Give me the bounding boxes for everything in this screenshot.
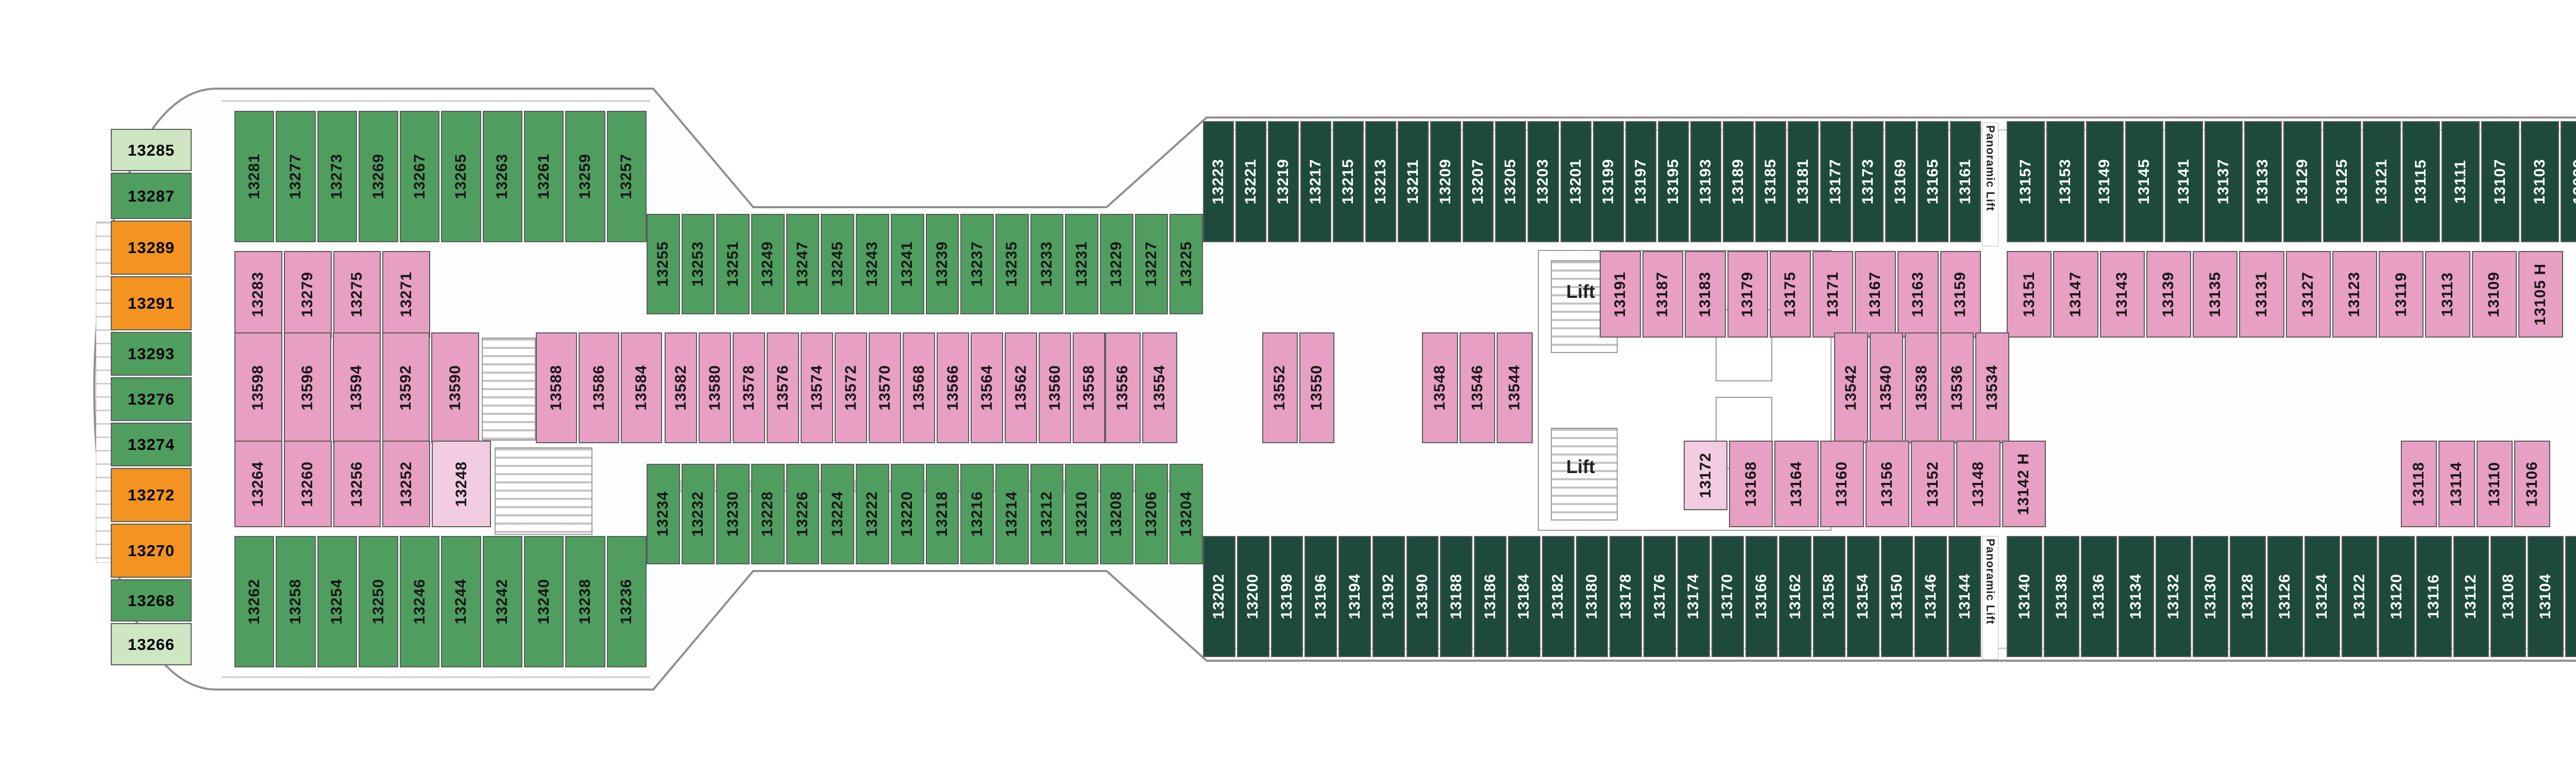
- cabin-row: 1328113277132731326913267132651326313261…: [234, 111, 647, 242]
- cabin-13224: 13224: [821, 464, 854, 564]
- cabin-13130: 13130: [2193, 536, 2228, 657]
- cabin-13546: 13546: [1460, 332, 1496, 443]
- cabin-13191: 13191: [1600, 251, 1641, 338]
- cabin-13229: 13229: [1100, 214, 1133, 314]
- cabin-13272: 13272: [111, 468, 192, 522]
- cabin-13142H: 13142 H: [2002, 441, 2046, 527]
- cabin-13552: 13552: [1262, 332, 1298, 443]
- cabin-13281: 13281: [234, 111, 274, 242]
- cabin-13225: 13225: [1170, 214, 1203, 314]
- cabin-13250: 13250: [359, 536, 398, 667]
- cabin-13179: 13179: [1727, 251, 1769, 338]
- cabin-13287: 13287: [111, 173, 192, 219]
- cabin-13180: 13180: [1576, 536, 1608, 657]
- cabin-row: 1315113147131431313913135131311312713123…: [2007, 251, 2563, 338]
- cabin-13132: 13132: [2156, 536, 2191, 657]
- cabin-row: 1355613554: [1105, 332, 1177, 443]
- cabin-13570: 13570: [869, 332, 901, 443]
- cabin-13252: 13252: [382, 441, 430, 527]
- cabin-row: 1358213580135781357613574135721357013568…: [665, 332, 1105, 443]
- cabin-13124: 13124: [2304, 536, 2340, 657]
- cabin-13164: 13164: [1774, 441, 1818, 527]
- cabin-13239: 13239: [926, 214, 959, 314]
- cabin-13199: 13199: [1593, 121, 1624, 242]
- cabin-13550: 13550: [1299, 332, 1335, 443]
- cabin-row: 1325513253132511324913247132451324313241…: [647, 214, 1203, 314]
- cabin-13277: 13277: [276, 111, 315, 242]
- cabin-row: 1354213540135381353613534: [1834, 332, 2009, 443]
- cabin-13172: 13172: [1684, 441, 1727, 510]
- cabin-13234: 13234: [647, 464, 680, 564]
- cabin-row: 13248: [432, 441, 491, 527]
- cabin-13119: 13119: [2379, 251, 2424, 338]
- cabin-13158: 13158: [1813, 536, 1845, 657]
- cabin-row: 1322313221132191321713215132131321113209…: [1203, 121, 1981, 242]
- cabin-13586: 13586: [579, 332, 620, 443]
- cabin-row: 1359813596135941359213590: [234, 332, 479, 443]
- cabin-13195: 13195: [1658, 121, 1689, 242]
- cabin-13201: 13201: [1561, 121, 1591, 242]
- cabin-13246: 13246: [400, 536, 439, 667]
- cabin-13226: 13226: [786, 464, 820, 564]
- cabin-13285: 13285: [111, 129, 192, 171]
- cabin-13107: 13107: [2481, 121, 2519, 242]
- cabin-row: 13264132601325613252: [234, 441, 430, 527]
- cabin-13104: 13104: [2528, 536, 2563, 657]
- cabin-13214: 13214: [995, 464, 1029, 564]
- cabin-13271: 13271: [382, 251, 430, 338]
- cabin-13562: 13562: [1005, 332, 1037, 443]
- cabin-13167: 13167: [1855, 251, 1896, 338]
- cabin-13220: 13220: [891, 464, 924, 564]
- cabin-13184: 13184: [1508, 536, 1540, 657]
- cabin-13175: 13175: [1770, 251, 1811, 338]
- cabin-13189: 13189: [1723, 121, 1754, 242]
- cabin-13248: 13248: [432, 441, 491, 527]
- cabin-13540: 13540: [1870, 332, 1904, 443]
- lift-label-port: Lift: [1566, 281, 1595, 303]
- cabin-13148: 13148: [1956, 441, 2000, 527]
- cabin-13144: 13144: [1948, 536, 1981, 657]
- cabin-13192: 13192: [1372, 536, 1405, 657]
- cabin-13137: 13137: [2205, 121, 2243, 242]
- cabin-13152: 13152: [1911, 441, 1955, 527]
- cabin-13590: 13590: [431, 332, 479, 443]
- cabin-13215: 13215: [1333, 121, 1364, 242]
- cabin-13564: 13564: [971, 332, 1003, 443]
- cabin-13162: 13162: [1779, 536, 1811, 657]
- cabin-13279: 13279: [284, 251, 332, 338]
- cabin-13202: 13202: [1203, 536, 1235, 657]
- cabin-13187: 13187: [1642, 251, 1684, 338]
- cabin-13125: 13125: [2323, 121, 2361, 242]
- cabin-13196: 13196: [1304, 536, 1337, 657]
- cabin-13194: 13194: [1338, 536, 1371, 657]
- panoramic-lift-label-starboard: Panoramic Lift: [1982, 536, 1998, 660]
- cabin-13265: 13265: [441, 111, 481, 242]
- cabin-13156: 13156: [1866, 441, 1909, 527]
- cabin-13140: 13140: [2007, 536, 2042, 657]
- cabin-13261: 13261: [524, 111, 564, 242]
- cabin-13245: 13245: [821, 214, 854, 314]
- cabin-13558: 13558: [1073, 332, 1105, 443]
- cabin-13259: 13259: [565, 111, 605, 242]
- cabin-13111: 13111: [2442, 121, 2480, 242]
- cabin-13276: 13276: [111, 377, 192, 421]
- cabin-13208: 13208: [1100, 464, 1133, 564]
- cabin-13236: 13236: [607, 536, 647, 667]
- cabin-13275: 13275: [333, 251, 381, 338]
- cabin-13241: 13241: [891, 214, 924, 314]
- cabin-13253: 13253: [682, 214, 715, 314]
- cabin-13204: 13204: [1170, 464, 1203, 564]
- cabin-13143: 13143: [2100, 251, 2145, 338]
- deck-plan: Lift Lift Lift Panoramic Lift Panoramic …: [0, 0, 2576, 772]
- cabin-13566: 13566: [937, 332, 969, 443]
- cabin-13123: 13123: [2332, 251, 2377, 338]
- cabin-13131: 13131: [2239, 251, 2284, 338]
- cabin-13538: 13538: [1905, 332, 1939, 443]
- cabin-13110: 13110: [2477, 441, 2513, 527]
- cabin-13190: 13190: [1406, 536, 1439, 657]
- cabin-13588: 13588: [536, 332, 577, 443]
- stairs: [495, 447, 592, 535]
- cabin-13554: 13554: [1142, 332, 1178, 443]
- cabin-13149: 13149: [2086, 121, 2124, 242]
- cabin-13267: 13267: [400, 111, 439, 242]
- cabin-13237: 13237: [960, 214, 994, 314]
- cabin-13159: 13159: [1940, 251, 1981, 338]
- cabin-13134: 13134: [2119, 536, 2154, 657]
- cabin-13228: 13228: [751, 464, 785, 564]
- cabin-13270: 13270: [111, 524, 192, 578]
- cabin-13182: 13182: [1542, 536, 1574, 657]
- cabin-13568: 13568: [903, 332, 935, 443]
- cabin-13560: 13560: [1039, 332, 1071, 443]
- cabin-13227: 13227: [1135, 214, 1168, 314]
- cabin-13118: 13118: [2401, 441, 2437, 527]
- cabin-13114: 13114: [2438, 441, 2475, 527]
- cabin-13135: 13135: [2193, 251, 2238, 338]
- cabin-13536: 13536: [1940, 332, 1974, 443]
- cabin-13133: 13133: [2244, 121, 2282, 242]
- cabin-row: 13172: [1684, 441, 1727, 510]
- cabin-13263: 13263: [483, 111, 522, 242]
- cabin-13243: 13243: [856, 214, 889, 314]
- cabin-13238: 13238: [565, 536, 605, 667]
- cabin-13258: 13258: [276, 536, 315, 667]
- cabin-13291: 13291: [111, 276, 192, 330]
- cabin-13146: 13146: [1914, 536, 1947, 657]
- cabin-13274: 13274: [111, 423, 192, 466]
- cabin-13257: 13257: [607, 111, 647, 242]
- cabin-13122: 13122: [2342, 536, 2377, 657]
- cabin-row: 1320213200131981319613194131921319013188…: [1203, 536, 1981, 657]
- cabin-13269: 13269: [359, 111, 398, 242]
- cabin-13213: 13213: [1365, 121, 1396, 242]
- cabin-13232: 13232: [682, 464, 715, 564]
- cabin-13099: 13099: [2561, 121, 2576, 242]
- cabin-13174: 13174: [1677, 536, 1710, 657]
- cabin-13129: 13129: [2283, 121, 2321, 242]
- cabin-13186: 13186: [1474, 536, 1506, 657]
- cabin-13283: 13283: [234, 251, 282, 338]
- cabin-13596: 13596: [284, 332, 332, 443]
- cabin-13273: 13273: [317, 111, 357, 242]
- cabin-13198: 13198: [1271, 536, 1303, 657]
- cabin-13574: 13574: [801, 332, 833, 443]
- cabin-13126: 13126: [2267, 536, 2303, 657]
- cabin-13177: 13177: [1820, 121, 1851, 242]
- cabin-13576: 13576: [767, 332, 799, 443]
- cabin-13163: 13163: [1897, 251, 1939, 338]
- cabin-13181: 13181: [1788, 121, 1819, 242]
- cabin-13154: 13154: [1847, 536, 1879, 657]
- cabin-13171: 13171: [1812, 251, 1854, 338]
- cabin-13109: 13109: [2472, 251, 2517, 338]
- cabin-13115: 13115: [2402, 121, 2441, 242]
- cabin-13120: 13120: [2379, 536, 2414, 657]
- cabin-13112: 13112: [2453, 536, 2489, 657]
- cabin-13206: 13206: [1135, 464, 1168, 564]
- cabin-13293: 13293: [111, 332, 192, 376]
- cabin-row: 13168131641316013156131521314813142 H: [1729, 441, 2046, 527]
- cabin-13268: 13268: [111, 579, 192, 622]
- cabin-13168: 13168: [1729, 441, 1773, 527]
- cabin-13178: 13178: [1609, 536, 1642, 657]
- cabin-13216: 13216: [960, 464, 994, 564]
- cabin-13582: 13582: [665, 332, 697, 443]
- cabin-13240: 13240: [524, 536, 564, 667]
- cabin-13209: 13209: [1430, 121, 1461, 242]
- cabin-13260: 13260: [284, 441, 332, 527]
- cabin-13222: 13222: [856, 464, 889, 564]
- cabin-13100: 13100: [2565, 536, 2576, 657]
- cabin-13203: 13203: [1528, 121, 1558, 242]
- cabin-13219: 13219: [1268, 121, 1299, 242]
- cabin-13211: 13211: [1398, 121, 1429, 242]
- cabin-13249: 13249: [751, 214, 785, 314]
- cabin-13150: 13150: [1881, 536, 1913, 657]
- stern-cabin-stack: 1328513287132891329113293132761327413272…: [111, 129, 192, 665]
- cabin-13151: 13151: [2007, 251, 2052, 338]
- cabin-13235: 13235: [995, 214, 1029, 314]
- cabin-13170: 13170: [1711, 536, 1744, 657]
- cabin-13244: 13244: [441, 536, 481, 667]
- cabin-13188: 13188: [1440, 536, 1472, 657]
- cabin-13108: 13108: [2490, 536, 2526, 657]
- cabin-13578: 13578: [733, 332, 765, 443]
- cabin-13136: 13136: [2081, 536, 2116, 657]
- cabin-13145: 13145: [2125, 121, 2163, 242]
- cabin-13197: 13197: [1625, 121, 1656, 242]
- cabin-row: 13283132791327513271: [234, 251, 430, 338]
- cabin-row: 13118131141311013106: [2401, 441, 2550, 527]
- cabin-13217: 13217: [1300, 121, 1331, 242]
- cabin-13266: 13266: [111, 623, 192, 665]
- cabin-13556: 13556: [1105, 332, 1141, 443]
- cabin-13185: 13185: [1755, 121, 1786, 242]
- cabin-13223: 13223: [1203, 121, 1234, 242]
- cabin-13166: 13166: [1745, 536, 1778, 657]
- cabin-13103: 13103: [2521, 121, 2559, 242]
- cabin-13128: 13128: [2230, 536, 2265, 657]
- cabin-13242: 13242: [483, 536, 522, 667]
- stairs: [482, 338, 536, 441]
- cabin-row: 1314013138131361313413132131301312813126…: [2007, 536, 2576, 657]
- cabin-13153: 13153: [2046, 121, 2084, 242]
- cabin-13218: 13218: [926, 464, 959, 564]
- cabin-13210: 13210: [1065, 464, 1098, 564]
- cabin-13572: 13572: [835, 332, 867, 443]
- cabin-row: 1355213550: [1262, 332, 1334, 443]
- cabin-13147: 13147: [2053, 251, 2098, 338]
- cabin-13183: 13183: [1685, 251, 1726, 338]
- cabin-13139: 13139: [2146, 251, 2191, 338]
- cabin-row: 1315713153131491314513141131371313313129…: [2007, 121, 2576, 242]
- panoramic-lift-label-port: Panoramic Lift: [1982, 123, 1998, 246]
- cabin-13542: 13542: [1834, 332, 1868, 443]
- cabin-13548: 13548: [1422, 332, 1458, 443]
- cabin-13200: 13200: [1237, 536, 1269, 657]
- cabin-13256: 13256: [333, 441, 381, 527]
- cabin-row: 135481354613544: [1422, 332, 1533, 443]
- cabin-13169: 13169: [1885, 121, 1916, 242]
- cabin-13584: 13584: [621, 332, 662, 443]
- cabin-row: 1323413232132301322813226132241322213220…: [647, 464, 1203, 564]
- cabin-13165: 13165: [1918, 121, 1948, 242]
- cabin-13230: 13230: [716, 464, 750, 564]
- cabin-13121: 13121: [2363, 121, 2401, 242]
- cabin-13106: 13106: [2514, 441, 2550, 527]
- cabin-13594: 13594: [333, 332, 381, 443]
- cabin-13116: 13116: [2416, 536, 2452, 657]
- cabin-13141: 13141: [2165, 121, 2203, 242]
- cabin-13598: 13598: [234, 332, 282, 443]
- cabin-13212: 13212: [1030, 464, 1064, 564]
- cabin-13160: 13160: [1820, 441, 1864, 527]
- cabin-row: 1319113187131831317913175131711316713163…: [1600, 251, 1981, 338]
- cabin-13161: 13161: [1950, 121, 1981, 242]
- cabin-13173: 13173: [1853, 121, 1884, 242]
- cabin-row: 135881358613584: [536, 332, 662, 443]
- cabin-13289: 13289: [111, 221, 192, 275]
- cabin-13534: 13534: [1975, 332, 2009, 443]
- cabin-13254: 13254: [317, 536, 357, 667]
- cabin-13544: 13544: [1497, 332, 1533, 443]
- cabin-13127: 13127: [2286, 251, 2331, 338]
- cabin-13231: 13231: [1065, 214, 1098, 314]
- cabin-13157: 13157: [2007, 121, 2045, 242]
- cabin-13113: 13113: [2425, 251, 2470, 338]
- cabin-13105H: 13105 H: [2518, 251, 2563, 338]
- cabin-13592: 13592: [382, 332, 430, 443]
- cabin-13251: 13251: [716, 214, 750, 314]
- cabin-row: 1326213258132541325013246132441324213240…: [234, 536, 647, 667]
- cabin-13221: 13221: [1235, 121, 1266, 242]
- cabin-13247: 13247: [786, 214, 820, 314]
- lift-label-starboard: Lift: [1566, 456, 1595, 478]
- cabin-13580: 13580: [699, 332, 731, 443]
- cabin-13138: 13138: [2044, 536, 2079, 657]
- cabin-13193: 13193: [1690, 121, 1721, 242]
- cabin-13233: 13233: [1030, 214, 1064, 314]
- cabin-13255: 13255: [647, 214, 680, 314]
- cabin-13207: 13207: [1463, 121, 1494, 242]
- cabin-13264: 13264: [234, 441, 282, 527]
- cabin-13176: 13176: [1643, 536, 1676, 657]
- cabin-13205: 13205: [1495, 121, 1526, 242]
- cabin-13262: 13262: [234, 536, 274, 667]
